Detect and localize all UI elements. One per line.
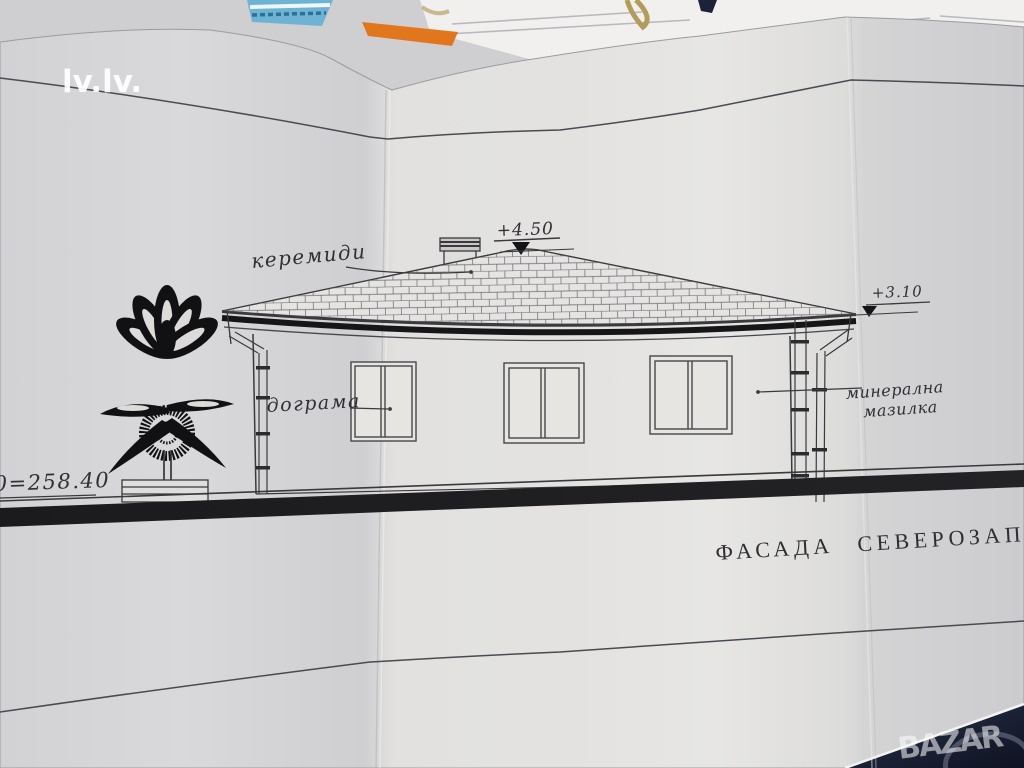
windows	[351, 356, 732, 443]
leader-dot	[388, 407, 392, 411]
tree-planter	[122, 480, 208, 502]
leader-dot	[469, 270, 473, 274]
elevation-eave-value: +3.10	[872, 282, 924, 302]
datum-value: 0=258.40	[0, 468, 111, 496]
chimney-cap	[440, 238, 480, 251]
window-1	[351, 362, 416, 441]
blue-booklet-stripe	[250, 5, 330, 7]
elevation-ridge-value: +4.50	[496, 219, 554, 241]
leader-dot	[756, 390, 760, 394]
window-3	[650, 356, 732, 434]
site-watermark-top-left: lv.lv.	[62, 64, 142, 100]
window-2	[504, 363, 584, 443]
photo-of-architectural-drawing: керемиди +4.50 +3.10 дограма минерална	[0, 0, 1024, 768]
